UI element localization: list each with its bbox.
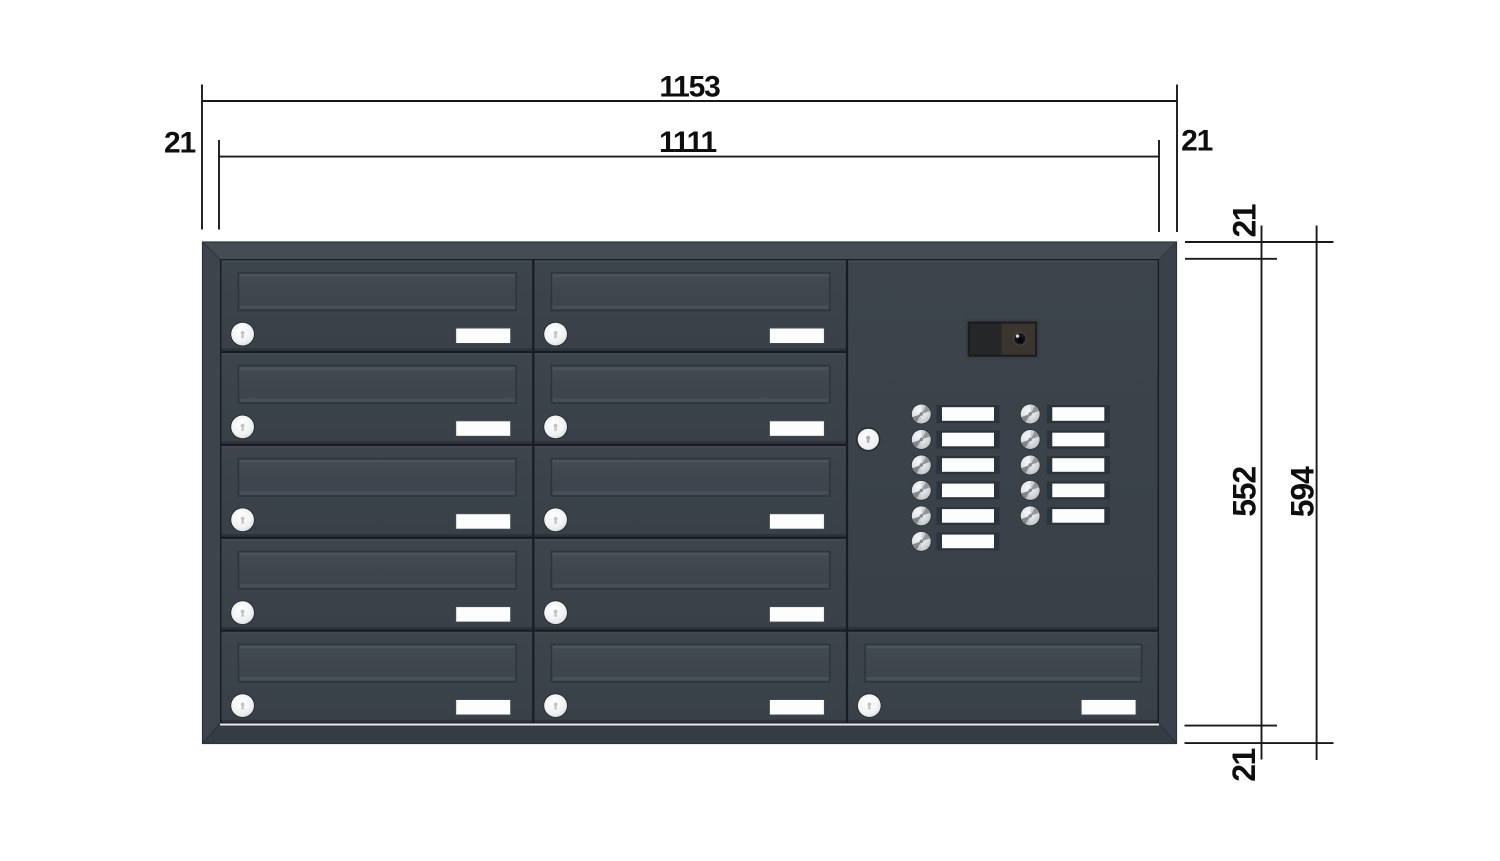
svg-text:21: 21 <box>1226 204 1262 237</box>
svg-text:1111: 1111 <box>659 126 716 159</box>
svg-text:21: 21 <box>1226 749 1262 782</box>
svg-text:1153: 1153 <box>659 71 720 104</box>
svg-text:21: 21 <box>1181 125 1212 158</box>
svg-text:594: 594 <box>1285 466 1321 517</box>
svg-text:552: 552 <box>1226 467 1262 517</box>
svg-text:21: 21 <box>164 126 195 159</box>
